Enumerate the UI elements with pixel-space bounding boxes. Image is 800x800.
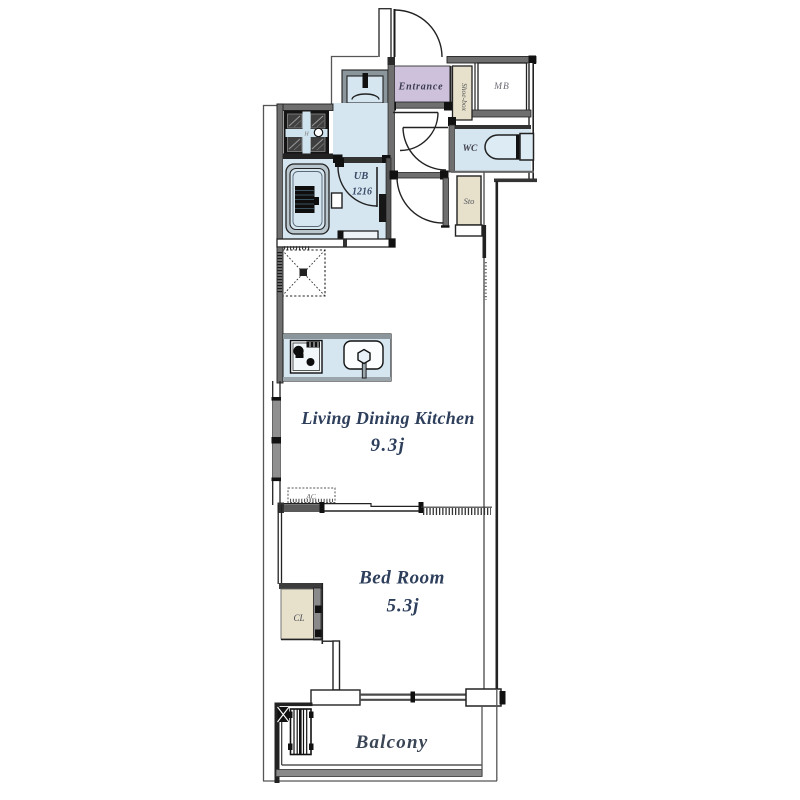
svg-text:Living Dining Kitchen: Living Dining Kitchen — [300, 408, 474, 428]
svg-text:UB: UB — [354, 171, 369, 182]
svg-text:MB: MB — [493, 82, 510, 92]
svg-text:AC: AC — [305, 492, 317, 501]
svg-text:CL: CL — [293, 613, 304, 623]
svg-text:Balcony: Balcony — [355, 732, 429, 753]
svg-text:WC: WC — [463, 144, 478, 154]
svg-text:Bed Room: Bed Room — [358, 568, 445, 589]
svg-text:Entrance: Entrance — [398, 82, 444, 93]
svg-text:Sto: Sto — [464, 196, 475, 206]
svg-text:H: H — [303, 132, 309, 138]
svg-text:1216: 1216 — [352, 187, 372, 198]
svg-text:9.3j: 9.3j — [370, 435, 405, 456]
svg-text:5.3j: 5.3j — [386, 596, 419, 617]
svg-text:Shoe-box: Shoe-box — [460, 83, 469, 112]
